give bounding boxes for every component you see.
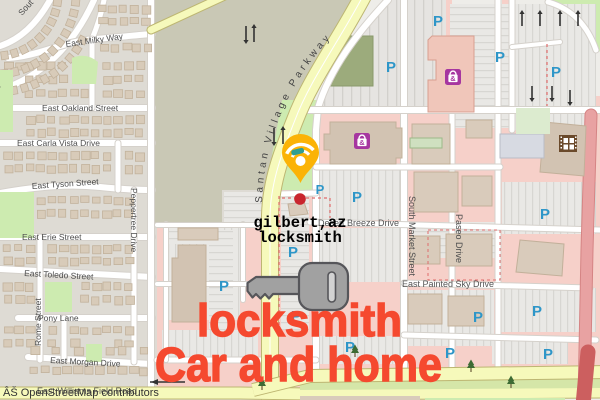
svg-text:Car and home: Car and home — [155, 339, 442, 392]
svg-text:P: P — [551, 64, 561, 81]
svg-text:East Painted Sky Drive: East Painted Sky Drive — [402, 279, 494, 289]
svg-text:&: & — [450, 74, 456, 83]
svg-text:P: P — [473, 309, 483, 326]
svg-text:Rome Street: Rome Street — [33, 298, 43, 346]
svg-text:P: P — [316, 182, 325, 197]
svg-text:Paseo Drive: Paseo Drive — [454, 214, 464, 263]
svg-text:East Carla Vista Drive: East Carla Vista Drive — [17, 138, 100, 148]
svg-text:P: P — [495, 49, 505, 66]
svg-text:&: & — [359, 138, 365, 147]
svg-text:Pony Lane: Pony Lane — [38, 313, 79, 323]
svg-text:P: P — [540, 206, 550, 223]
svg-text:P: P — [433, 13, 443, 30]
svg-text:P: P — [445, 345, 455, 362]
svg-text:ÂŠ OpenStreetMap contributors: ÂŠ OpenStreetMap contributors — [3, 386, 159, 399]
svg-text:P: P — [352, 189, 362, 206]
svg-text:East Erie Street: East Erie Street — [22, 232, 82, 242]
svg-text:P: P — [543, 346, 553, 363]
svg-text:P: P — [219, 278, 229, 295]
svg-text:P: P — [532, 303, 542, 320]
svg-text:South Market Street: South Market Street — [407, 196, 417, 277]
svg-text:East Oakland Street: East Oakland Street — [42, 103, 119, 113]
svg-text:Peppertree Drive: Peppertree Drive — [129, 188, 139, 253]
svg-text:P: P — [386, 59, 396, 76]
svg-text:locksmith: locksmith — [258, 229, 342, 247]
